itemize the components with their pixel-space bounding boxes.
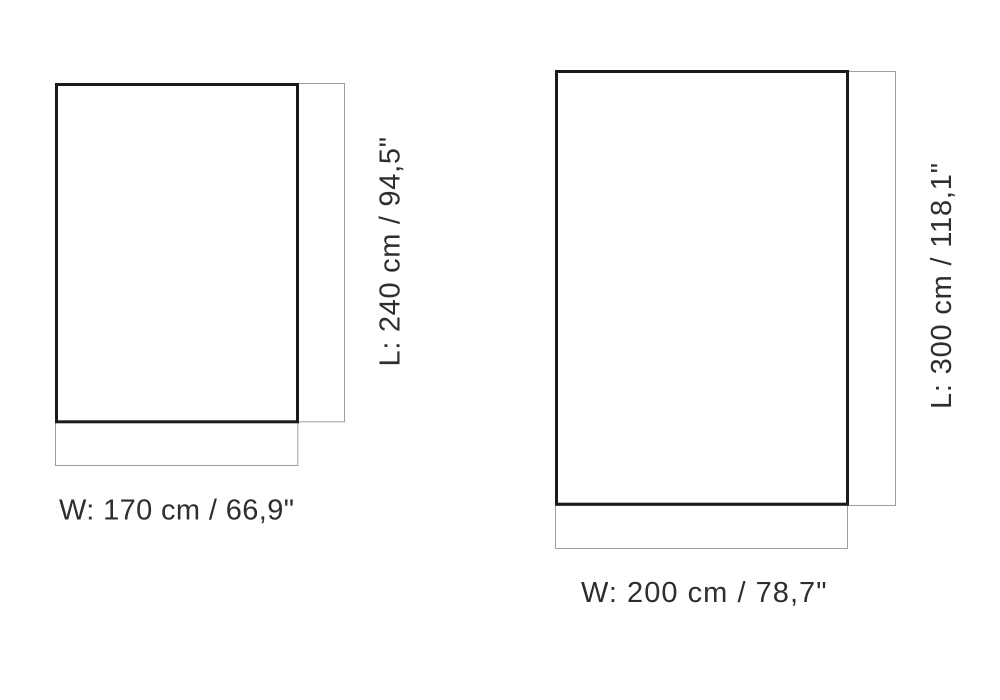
svg-text:L: 300 cm / 118,1": L: 300 cm / 118,1" (926, 163, 958, 409)
svg-text:W: 200 cm / 78,7": W: 200 cm / 78,7" (581, 577, 827, 609)
svg-text:W: 170 cm / 66,9": W: 170 cm / 66,9" (59, 495, 294, 527)
svg-text:L: 240 cm / 94,5": L: 240 cm / 94,5" (374, 137, 406, 367)
